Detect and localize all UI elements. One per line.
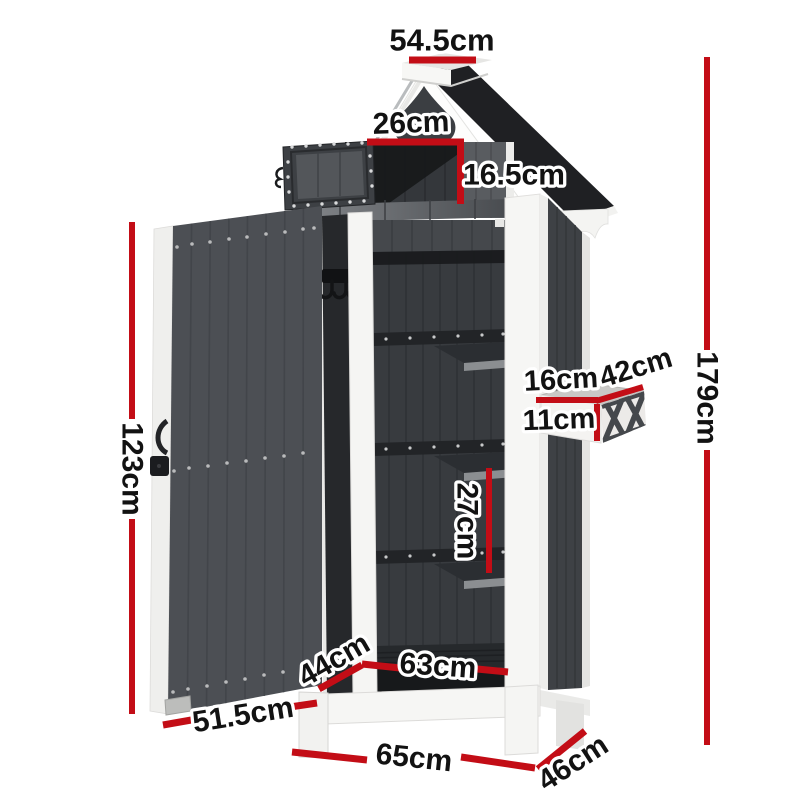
right-stile [505, 194, 540, 690]
dim-floor-width-label: 63cm [399, 647, 478, 685]
dim-base-width-line-left [292, 752, 367, 760]
side-corner-trim-back [582, 232, 590, 688]
dim-shelf-spacing-label: 27cm [451, 483, 484, 560]
dim-door-width-line-right [290, 703, 317, 707]
front-top-screw-plate [495, 219, 504, 227]
dim-planter-height-label: 11cm [522, 403, 596, 438]
dim-total-height-label: 179cm [691, 351, 724, 444]
interior-top-shadow [372, 250, 505, 265]
shed-illustration: 54.5cm 26cm 16.5cm 123cm 27cm 16cm 42cm … [0, 0, 800, 800]
door-latch-pin [157, 464, 161, 468]
dim-door-height-label: 123cm [116, 422, 149, 515]
flap-hook-wire [276, 168, 283, 187]
dim-top-box-height-label: 16.5cm [463, 159, 565, 192]
dim-floor-width-line-left [362, 664, 400, 668]
dim-planter-depth-label: 16cm [523, 362, 599, 398]
flap-inner-panel [296, 151, 364, 199]
open-door [150, 206, 322, 715]
product-dimension-diagram: 54.5cm 26cm 16.5cm 123cm 27cm 16cm 42cm … [0, 0, 800, 800]
side-corner-trim-front [540, 194, 548, 690]
dim-base-width-label: 65cm [374, 738, 454, 779]
dim-top-box-width-label: 26cm [372, 105, 450, 141]
side-panel [548, 198, 582, 690]
dim-base-width-line-right [461, 757, 535, 768]
left-stile [348, 212, 377, 696]
open-flap-door [276, 141, 375, 210]
dim-roof-width-label: 54.5cm [389, 23, 494, 58]
dim-floor-width-line-right [477, 669, 508, 672]
front-right-leg [505, 685, 538, 755]
